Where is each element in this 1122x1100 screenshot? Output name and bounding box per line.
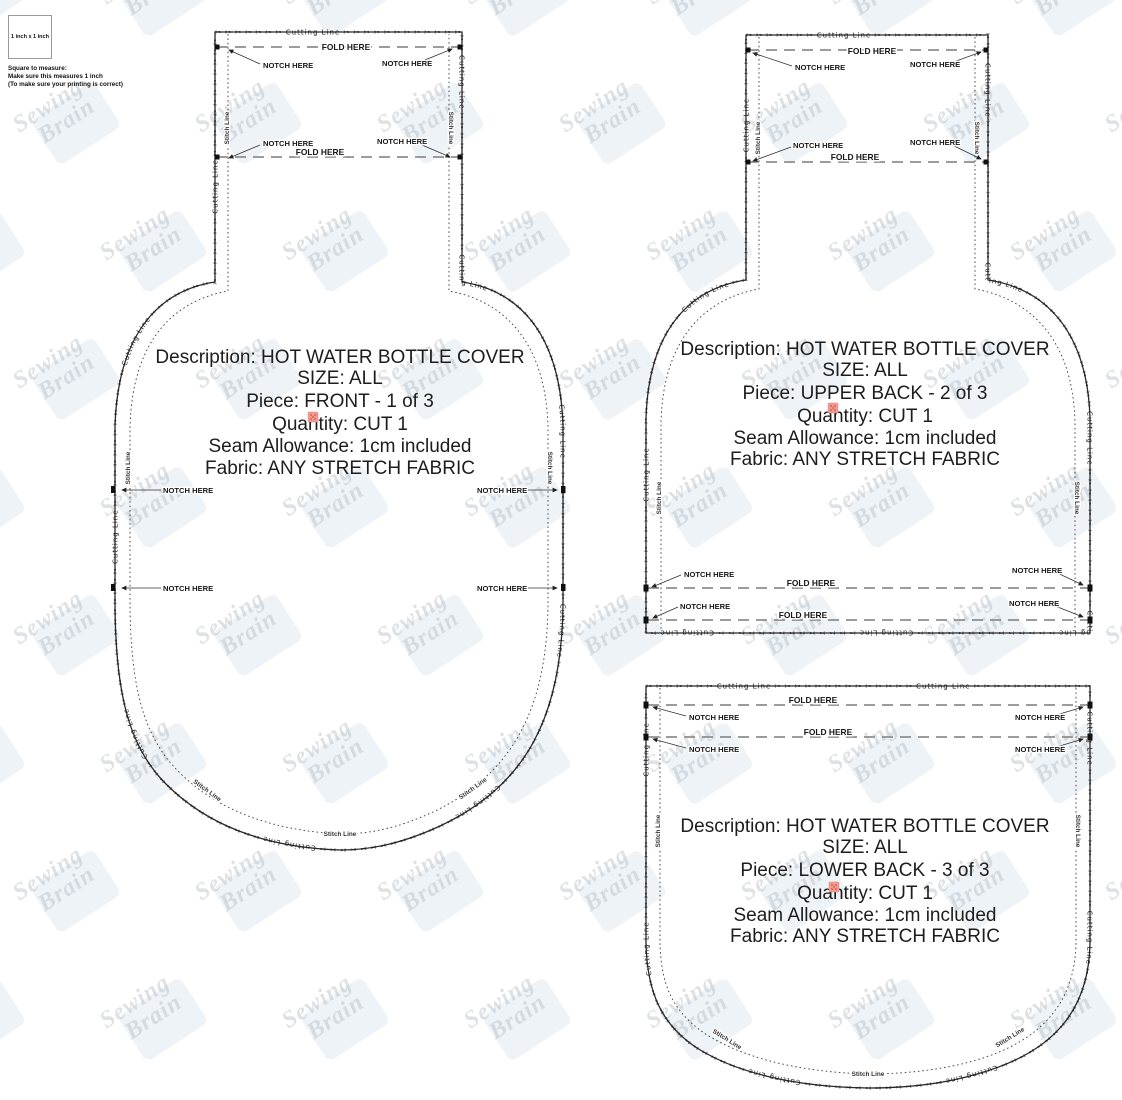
notch-mark [215,45,220,50]
piece-name: Piece: FRONT - 1 of 3 [246,391,434,412]
watermark: SewingBrain [0,453,26,557]
stitch-line-label: Stitch Line [973,122,980,155]
stitch-line-label: Stitch Line [1073,482,1080,515]
front-notch-label: NOTCH HERE [477,486,527,495]
piece-quantity: Quantity: CUT 1 [797,406,933,427]
stitch-line-label: Stitch Line [852,1071,885,1078]
piece-size: SIZE: ALL [297,368,383,389]
lower-notch-label: NOTCH HERE [689,745,739,754]
piece-size: SIZE: ALL [822,837,908,858]
upper-fold-label-3: FOLD HERE [787,578,836,588]
piece-name: Piece: LOWER BACK - 3 of 3 [740,860,989,881]
front-fold-label-2: FOLD HERE [296,147,345,157]
notch-mark [561,584,566,591]
notch-arrow [229,50,260,64]
pattern-piece-front: ✂ ✂ ✂ ✂ ✂ ✂ ✂ Cutting Line ✂ ✂ ✂ ✂ ✂ ✂ ✂… [108,28,570,860]
watermark: SewingBrain [555,1093,666,1100]
piece-quantity: Quantity: CUT 1 [272,414,408,435]
notch-mark [111,584,116,591]
calibration-note-1: Square to measure: [8,65,123,73]
upper-fold-label-2: FOLD HERE [831,152,880,162]
stitch-line-label: Stitch Line [192,778,223,803]
piece-seam: Seam Allowance: 1cm included [209,436,472,457]
watermark: SewingBrain [1101,325,1122,429]
notch-mark [215,155,220,160]
piece-fabric: Fabric: ANY STRETCH FABRIC [730,926,1000,947]
watermark: SewingBrain [460,965,571,1069]
upper-notch-label: NOTCH HERE [793,141,843,150]
notch-mark [984,48,989,53]
notch-arrow [229,145,260,158]
watermark: SewingBrain [1101,581,1122,685]
calibration-notes: Square to measure: Make sure this measur… [8,65,123,90]
stitch-line-label: Stitch Line [755,121,762,154]
center-marker [829,882,839,892]
notch-mark [458,155,463,160]
notch-mark [1088,617,1093,624]
stitch-line-label: Stitch Line [1074,815,1081,848]
notch-mark [1088,702,1093,709]
front-notch-label: NOTCH HERE [477,584,527,593]
upper-notch-label: NOTCH HERE [1012,566,1062,575]
stitch-line-label: Stitch Line [125,451,132,484]
notch-mark [111,486,116,493]
stitch-line-label: Stitch Line [546,452,553,485]
piece-description: Description: HOT WATER BOTTLE COVER [680,816,1049,837]
notch-mark [644,702,649,709]
notch-arrow [653,707,686,716]
lower-back-info-text: Description: HOT WATER BOTTLE COVER SIZE… [680,816,1049,947]
front-notch-label: NOTCH HERE [163,486,213,495]
center-marker [308,412,318,422]
notch-arrow [653,607,678,618]
upper-fold-label-1: FOLD HERE [848,46,897,56]
notch-mark [458,45,463,50]
watermark: SewingBrain [1101,1093,1122,1100]
notch-arrow [652,575,681,587]
upper-back-cutting-line-text: ✂ ✂ ✂ ✂ ✂ ✂ ✂ Cutting Line ✂ ✂ ✂ ✂ ✂ ✂ ✂… [638,25,1094,637]
front-notch-label: NOTCH HERE [163,584,213,593]
watermark: SewingBrain [1101,837,1122,941]
front-notch-label: NOTCH HERE [377,137,427,146]
piece-fabric: Fabric: ANY STRETCH FABRIC [730,449,1000,470]
calibration-block: 1 inch x 1 inch Square to measure: Make … [8,15,123,90]
stitch-line-label: Stitch Line [711,1028,743,1051]
stitch-line-label: Stitch Line [994,1026,1026,1049]
watermark: SewingBrain [9,325,120,429]
watermark: SewingBrain [0,197,26,301]
watermark: SewingBrain [9,581,120,685]
stitch-line-label: Stitch Line [324,831,357,838]
pattern-sheet: SewingBrainSewingBrainSewingBrainSewingB… [0,0,1122,1100]
watermark: SewingBrain [278,965,389,1069]
piece-fabric: Fabric: ANY STRETCH FABRIC [205,458,475,479]
watermark: SewingBrain [96,965,207,1069]
piece-size: SIZE: ALL [822,360,908,381]
lower-fold-label-1: FOLD HERE [789,695,838,705]
notch-mark [644,734,649,741]
notch-mark [746,160,751,165]
lower-notch-label: NOTCH HERE [689,713,739,722]
calibration-note-3: (To make sure your printing is correct) [8,81,123,89]
piece-seam: Seam Allowance: 1cm included [734,428,997,449]
notch-mark [644,585,649,592]
front-notch-label: NOTCH HERE [382,59,432,68]
lower-fold-label-2: FOLD HERE [804,727,853,737]
notch-mark [1088,734,1093,741]
upper-notch-label: NOTCH HERE [684,570,734,579]
calibration-square: 1 inch x 1 inch [8,15,52,59]
upper-notch-label: NOTCH HERE [1009,599,1059,608]
notch-mark [1088,585,1093,592]
notch-mark [984,160,989,165]
watermark: SewingBrain [9,837,120,941]
notch-mark [561,486,566,493]
watermark: SewingBrain [1101,69,1122,173]
piece-name: Piece: UPPER BACK - 2 of 3 [743,383,988,404]
calibration-square-label: 1 inch x 1 inch [11,34,49,40]
stitch-line-label: Stitch Line [447,112,454,145]
center-marker [828,403,838,413]
upper-back-cutting-outline [646,35,1090,633]
watermark: SewingBrain [737,1093,848,1100]
notch-arrow [653,739,686,748]
notch-mark [644,617,649,624]
stitch-line-label: Stitch Line [656,481,663,514]
stitch-line-label: Stitch Line [655,814,662,847]
watermark: SewingBrain [919,1093,1030,1100]
pattern-piece-lower-back: ✂ ✂ ✂ ✂ ✂ ✂ ✂ Cutting Line ✂ ✂ ✂ ✂ ✂ ✂ ✂… [641,681,1097,1093]
upper-notch-label: NOTCH HERE [680,602,730,611]
calibration-note-2: Make sure this measures 1 inch [8,73,123,81]
watermark: SewingBrain [0,709,26,813]
lower-notch-label: NOTCH HERE [1015,713,1065,722]
front-fold-label-1: FOLD HERE [322,42,371,52]
upper-back-info-text: Description: HOT WATER BOTTLE COVER SIZE… [680,339,1049,470]
watermark: SewingBrain [373,1093,484,1100]
piece-seam: Seam Allowance: 1cm included [734,905,997,926]
notch-mark [746,48,751,53]
watermark: SewingBrain [9,1093,120,1100]
pattern-piece-upper-back: ✂ ✂ ✂ ✂ ✂ ✂ ✂ Cutting Line ✂ ✂ ✂ ✂ ✂ ✂ ✂… [641,28,1097,644]
front-info-text: Description: HOT WATER BOTTLE COVER SIZE… [155,347,524,479]
stitch-line-label: Stitch Line [224,111,231,144]
upper-notch-label: NOTCH HERE [910,138,960,147]
front-notch-label: NOTCH HERE [263,139,313,148]
piece-quantity: Quantity: CUT 1 [797,883,933,904]
front-notch-label: NOTCH HERE [263,61,313,70]
upper-notch-label: NOTCH HERE [910,60,960,69]
piece-description: Description: HOT WATER BOTTLE COVER [680,339,1049,360]
upper-fold-label-4: FOLD HERE [779,610,828,620]
piece-description: Description: HOT WATER BOTTLE COVER [155,347,524,368]
lower-notch-label: NOTCH HERE [1015,745,1065,754]
watermark: SewingBrain [191,1093,302,1100]
upper-notch-label: NOTCH HERE [795,63,845,72]
watermark: SewingBrain [0,965,26,1069]
